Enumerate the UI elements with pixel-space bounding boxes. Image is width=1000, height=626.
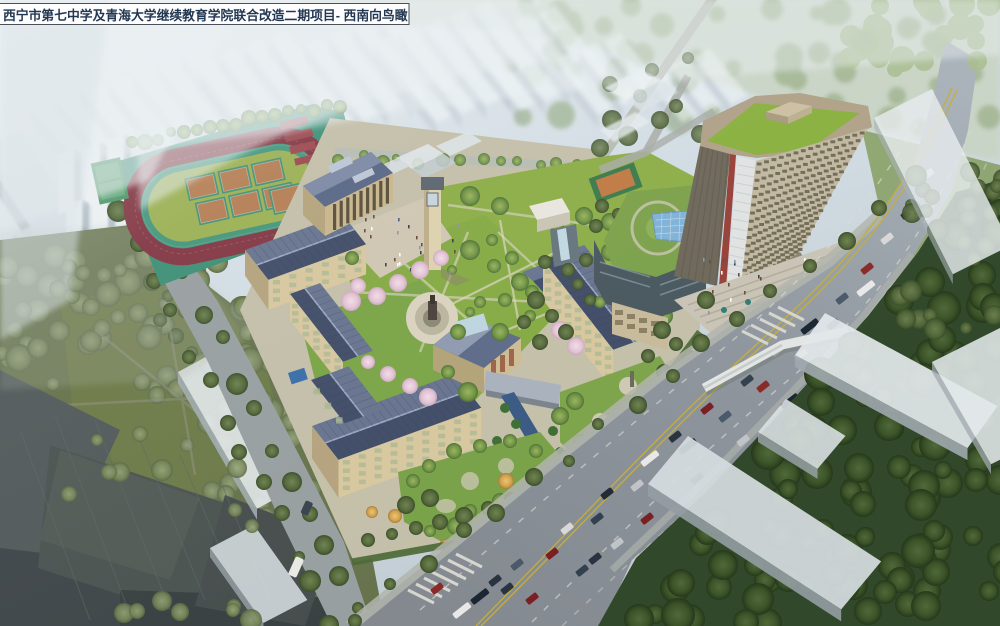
svg-text:西宁市第七中学及青海大学继续教育学院联合改造二期项目- 西南: 西宁市第七中学及青海大学继续教育学院联合改造二期项目- 西南向鸟瞰 [3,8,408,23]
